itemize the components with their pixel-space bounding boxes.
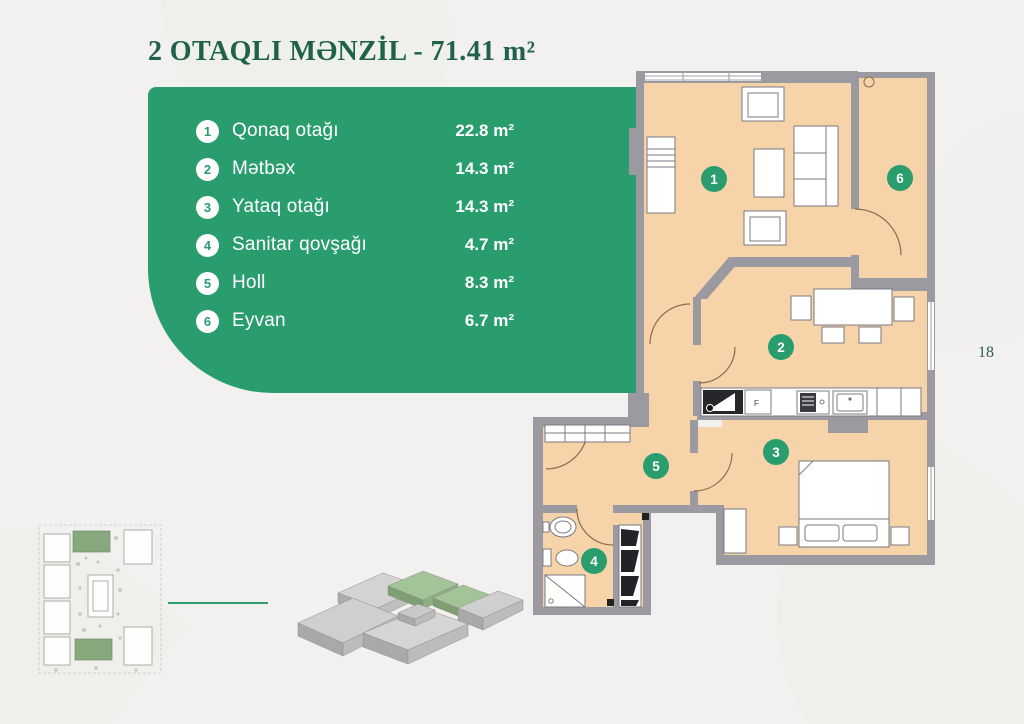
room-marker-3: 3 [763, 439, 789, 465]
room-marker-1: 1 [701, 166, 727, 192]
toilet-icon [543, 549, 578, 566]
page-number: 18 [978, 344, 994, 362]
pillow [805, 525, 839, 541]
room-number-badge: 3 [196, 196, 219, 219]
bedroom-closet [724, 509, 746, 553]
sink-icon [833, 391, 867, 414]
nightstand [891, 527, 909, 545]
building-block [124, 530, 152, 564]
stove-icon [797, 391, 829, 414]
shelf-unit [619, 525, 641, 607]
room-label: Yataq otağı [232, 196, 330, 218]
building-block [44, 565, 70, 598]
building-block [44, 637, 70, 665]
room-marker-4: 4 [581, 548, 607, 574]
building-3d-render [283, 538, 533, 683]
room-number-badge: 1 [196, 120, 219, 143]
room-label: Sanitar qovşağı [232, 234, 367, 256]
room-number-badge: 5 [196, 272, 219, 295]
kitchen-counter [701, 388, 921, 416]
stove-label: F [754, 399, 759, 408]
building-block [124, 627, 152, 665]
svg-text:4: 4 [590, 554, 598, 569]
room-area: 6.7 m² [444, 311, 514, 331]
nightstand [779, 527, 797, 545]
coffee-table [754, 149, 784, 197]
room-area: 22.8 m² [444, 121, 514, 141]
room-label: Mətbəx [232, 158, 296, 180]
room-number-badge: 2 [196, 158, 219, 181]
room-number-badge: 6 [196, 310, 219, 333]
pillow [843, 525, 877, 541]
column-icon [864, 77, 874, 87]
page-title: 2 OTAQLI MƏNZİL - 71.41 m² [148, 36, 535, 68]
room-label: Qonaq otağı [232, 120, 339, 142]
apartment-floor-plan: F 1 2 3 4 5 [533, 57, 943, 632]
room-area: 4.7 m² [444, 235, 514, 255]
site-master-plan [36, 518, 166, 678]
dining-chair [822, 327, 844, 343]
armchair [744, 211, 786, 245]
bed [799, 461, 889, 547]
hall-wardrobe [545, 425, 630, 442]
room-marker-6: 6 [887, 165, 913, 191]
room-area: 8.3 m² [444, 273, 514, 293]
connector-line [168, 602, 268, 604]
room-label: Eyvan [232, 310, 286, 332]
sofa [794, 126, 838, 206]
highlighted-building [73, 531, 110, 552]
room-area: 14.3 m² [444, 197, 514, 217]
svg-text:6: 6 [896, 171, 904, 186]
brochure-page: 2 OTAQLI MƏNZİL - 71.41 m² 18 1 Qonaq ot… [0, 0, 1024, 724]
armchair [742, 87, 784, 121]
svg-text:1: 1 [710, 172, 718, 187]
room-area: 14.3 m² [444, 159, 514, 179]
dining-chair [791, 296, 811, 320]
room-number-badge: 4 [196, 234, 219, 257]
room-marker-2: 2 [768, 334, 794, 360]
room-marker-5: 5 [643, 453, 669, 479]
svg-text:2: 2 [777, 340, 785, 355]
tv-cabinet [647, 137, 675, 213]
dining-chair [894, 297, 914, 321]
shower-icon [545, 575, 585, 607]
svg-text:3: 3 [772, 445, 780, 460]
svg-text:5: 5 [652, 459, 660, 474]
room-label: Holl [232, 272, 266, 294]
building-block [44, 601, 70, 634]
dining-chair [859, 327, 881, 343]
highlighted-building [75, 639, 112, 660]
building-block [44, 534, 70, 562]
dining-table [814, 289, 892, 325]
